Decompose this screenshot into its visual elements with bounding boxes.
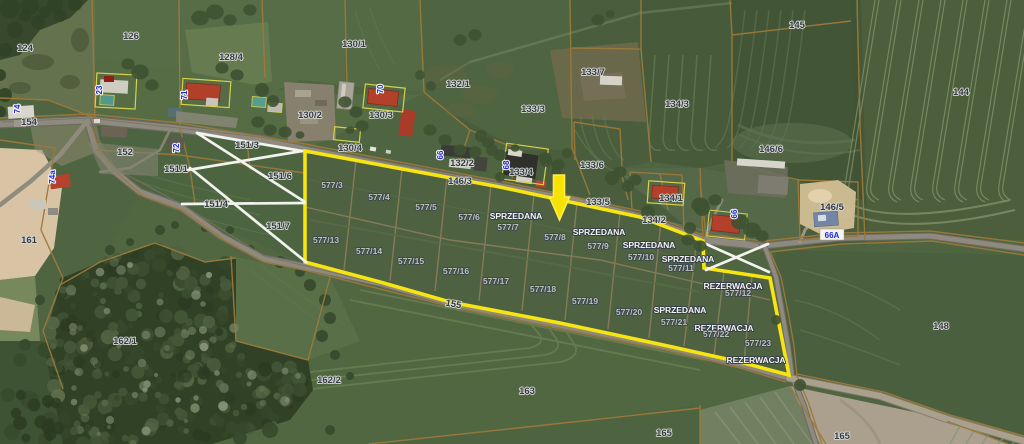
svg-text:577/15: 577/15 [398, 256, 425, 266]
svg-text:577/11: 577/11 [668, 263, 694, 273]
svg-text:152: 152 [117, 147, 133, 158]
svg-text:154: 154 [21, 117, 38, 128]
svg-text:165: 165 [656, 428, 673, 439]
svg-text:74a: 74a [48, 170, 57, 184]
svg-text:577/7: 577/7 [497, 222, 519, 232]
svg-text:161: 161 [21, 235, 38, 246]
svg-text:132/1: 132/1 [446, 79, 470, 90]
svg-text:133/6: 133/6 [580, 160, 604, 171]
svg-text:151/6: 151/6 [268, 171, 292, 182]
svg-text:146/3: 146/3 [448, 176, 472, 187]
svg-text:577/17: 577/17 [483, 276, 510, 286]
svg-text:SPRZEDANA: SPRZEDANA [623, 240, 676, 250]
svg-text:577/5: 577/5 [415, 202, 437, 212]
svg-text:SPRZEDANA: SPRZEDANA [654, 305, 707, 315]
svg-text:146/5: 146/5 [820, 202, 844, 213]
svg-text:577/10: 577/10 [628, 252, 655, 262]
svg-text:71: 71 [180, 90, 189, 99]
svg-text:66A: 66A [825, 231, 840, 240]
svg-text:133/5: 133/5 [586, 197, 610, 208]
svg-text:577/13: 577/13 [313, 235, 340, 245]
svg-text:145: 145 [789, 20, 806, 31]
svg-text:577/21: 577/21 [661, 317, 688, 327]
svg-text:126: 126 [123, 31, 139, 42]
svg-text:577/14: 577/14 [356, 246, 383, 256]
svg-text:577/20: 577/20 [616, 307, 643, 317]
svg-text:134/2: 134/2 [642, 215, 666, 226]
svg-text:68: 68 [502, 160, 511, 169]
svg-text:130/4: 130/4 [338, 143, 362, 154]
svg-text:577/12: 577/12 [725, 288, 752, 298]
svg-text:130/1: 130/1 [342, 39, 366, 50]
svg-text:577/4: 577/4 [368, 192, 390, 202]
svg-text:66: 66 [436, 150, 445, 159]
svg-text:SPRZEDANA: SPRZEDANA [573, 227, 626, 237]
svg-text:70: 70 [376, 84, 385, 93]
svg-text:577/23: 577/23 [745, 338, 772, 348]
svg-text:74: 74 [13, 104, 22, 113]
svg-text:577/16: 577/16 [443, 266, 470, 276]
svg-text:133/3: 133/3 [521, 104, 545, 115]
svg-text:124: 124 [17, 43, 34, 54]
svg-text:151/7: 151/7 [266, 221, 290, 232]
svg-text:162/2: 162/2 [317, 375, 341, 386]
svg-text:132/2: 132/2 [450, 158, 474, 169]
svg-text:128/4: 128/4 [219, 52, 243, 63]
svg-text:66: 66 [730, 209, 739, 218]
svg-text:133/7: 133/7 [581, 67, 605, 78]
svg-text:151/4: 151/4 [204, 199, 228, 210]
svg-text:146/6: 146/6 [759, 144, 783, 155]
svg-text:REZERWACJA: REZERWACJA [726, 355, 785, 365]
svg-text:165: 165 [834, 431, 851, 442]
svg-text:148: 148 [933, 321, 949, 332]
svg-text:577/22: 577/22 [703, 329, 730, 339]
svg-text:151/3: 151/3 [235, 140, 259, 151]
svg-text:577/6: 577/6 [458, 212, 480, 222]
svg-text:23: 23 [95, 85, 104, 94]
svg-text:72: 72 [172, 143, 181, 152]
svg-text:162/1: 162/1 [113, 336, 137, 347]
svg-text:577/19: 577/19 [572, 296, 599, 306]
svg-text:134/1: 134/1 [659, 193, 683, 204]
svg-text:577/9: 577/9 [587, 241, 609, 251]
svg-text:163: 163 [519, 386, 535, 397]
svg-text:130/3: 130/3 [369, 110, 393, 121]
svg-text:577/18: 577/18 [530, 284, 557, 294]
svg-text:134/3: 134/3 [665, 99, 689, 110]
svg-text:577/3: 577/3 [321, 180, 343, 190]
svg-text:151/1: 151/1 [164, 164, 188, 175]
svg-text:130/2: 130/2 [298, 110, 322, 121]
svg-text:577/8: 577/8 [544, 232, 566, 242]
svg-text:133/4: 133/4 [509, 167, 533, 178]
svg-text:144: 144 [953, 87, 970, 98]
svg-text:SPRZEDANA: SPRZEDANA [490, 211, 543, 221]
